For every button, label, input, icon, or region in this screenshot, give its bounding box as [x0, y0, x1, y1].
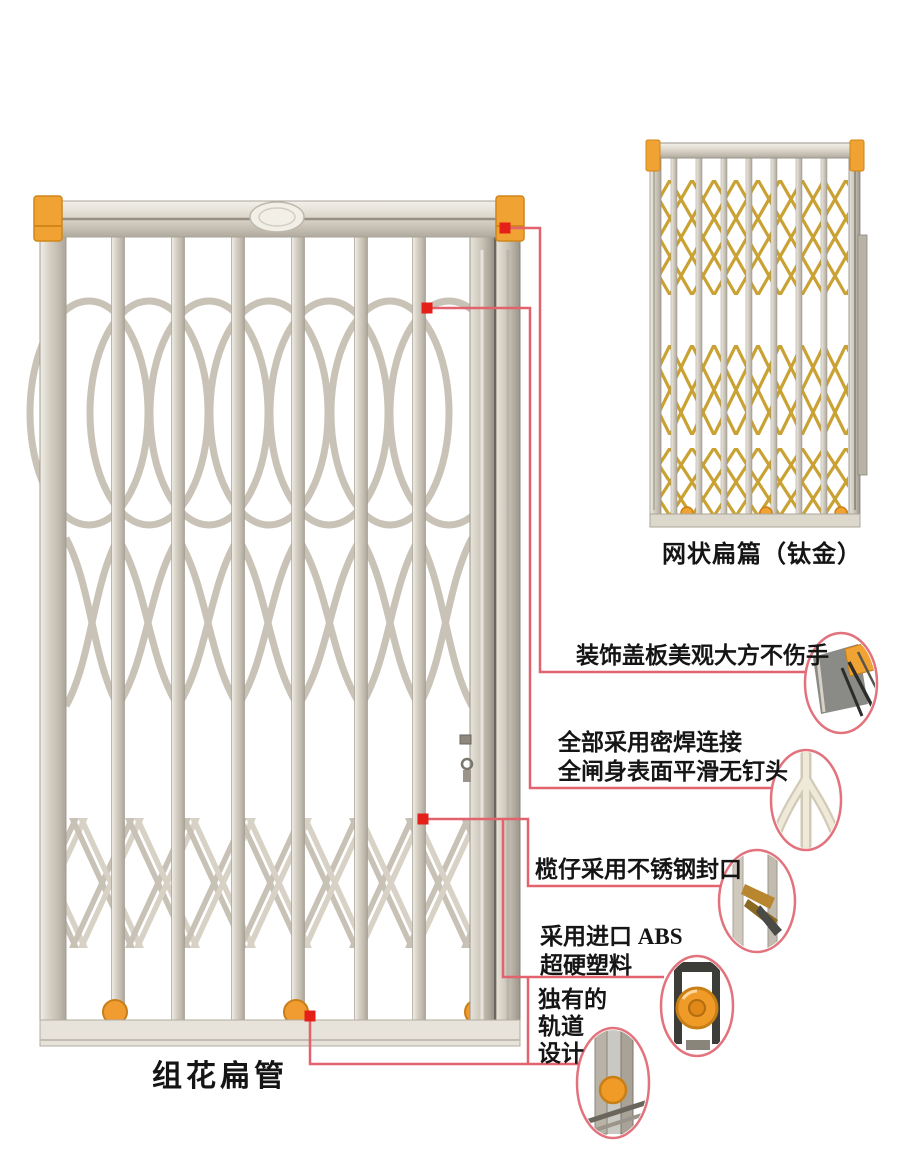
small-gate [646, 140, 868, 527]
gold-mesh-bands [648, 180, 868, 516]
marker-weld [422, 303, 433, 314]
callout-line: 设计 [538, 1040, 607, 1067]
product-sheet: 装饰盖板美观大方不伤手 全部采用密焊连接 全闸身表面平滑无钉头 榄仔采用不锈钢封… [0, 0, 899, 1150]
callout-line: 全闸身表面平滑无钉头 [558, 757, 788, 786]
corner-cap-left [34, 196, 62, 241]
callout-text-seal: 榄仔采用不锈钢封口 [535, 855, 742, 884]
callout-text-track: 独有的 轨道 设计 [538, 986, 607, 1067]
callout-text-cover-plate: 装饰盖板美观大方不伤手 [576, 641, 829, 670]
small-bottom-rail [650, 514, 860, 527]
brand-badge [250, 202, 304, 232]
left-frame-rail [40, 237, 66, 1025]
marker-cover-plate [500, 223, 511, 234]
callout-line: 装饰盖板美观大方不伤手 [576, 641, 829, 670]
small-wall-track [858, 235, 867, 475]
callout-line: 采用进口 ABS [540, 922, 683, 951]
bottom-rail [40, 1020, 520, 1046]
small-cap-right [850, 140, 864, 171]
arch-curve-pattern [66, 538, 472, 706]
callout-line: 榄仔采用不锈钢封口 [535, 855, 742, 884]
callout-line: 超硬塑料 [540, 951, 683, 980]
main-gate-caption: 组花扁管 [152, 1058, 288, 1096]
flower-circle-pattern [30, 301, 508, 525]
marker-track [305, 1011, 316, 1022]
callout-text-weld: 全部采用密焊连接 全闸身表面平滑无钉头 [558, 728, 788, 787]
marker-seal [418, 814, 429, 825]
callout-line: 全部采用密焊连接 [558, 728, 788, 757]
small-cap-left [646, 140, 660, 171]
callout-line: 轨道 [538, 1013, 607, 1040]
callout-text-abs: 采用进口 ABS 超硬塑料 [540, 922, 683, 981]
small-gate-caption: 网状扁篇（钛金） [662, 540, 862, 571]
main-gate [0, 196, 533, 1046]
small-top-rail [648, 143, 862, 158]
corner-cap-right [496, 196, 524, 241]
lattice-pattern [0, 818, 533, 948]
gate-illustration-canvas [0, 0, 899, 1150]
callout-line: 独有的 [538, 986, 607, 1013]
small-left-rail [650, 158, 661, 518]
